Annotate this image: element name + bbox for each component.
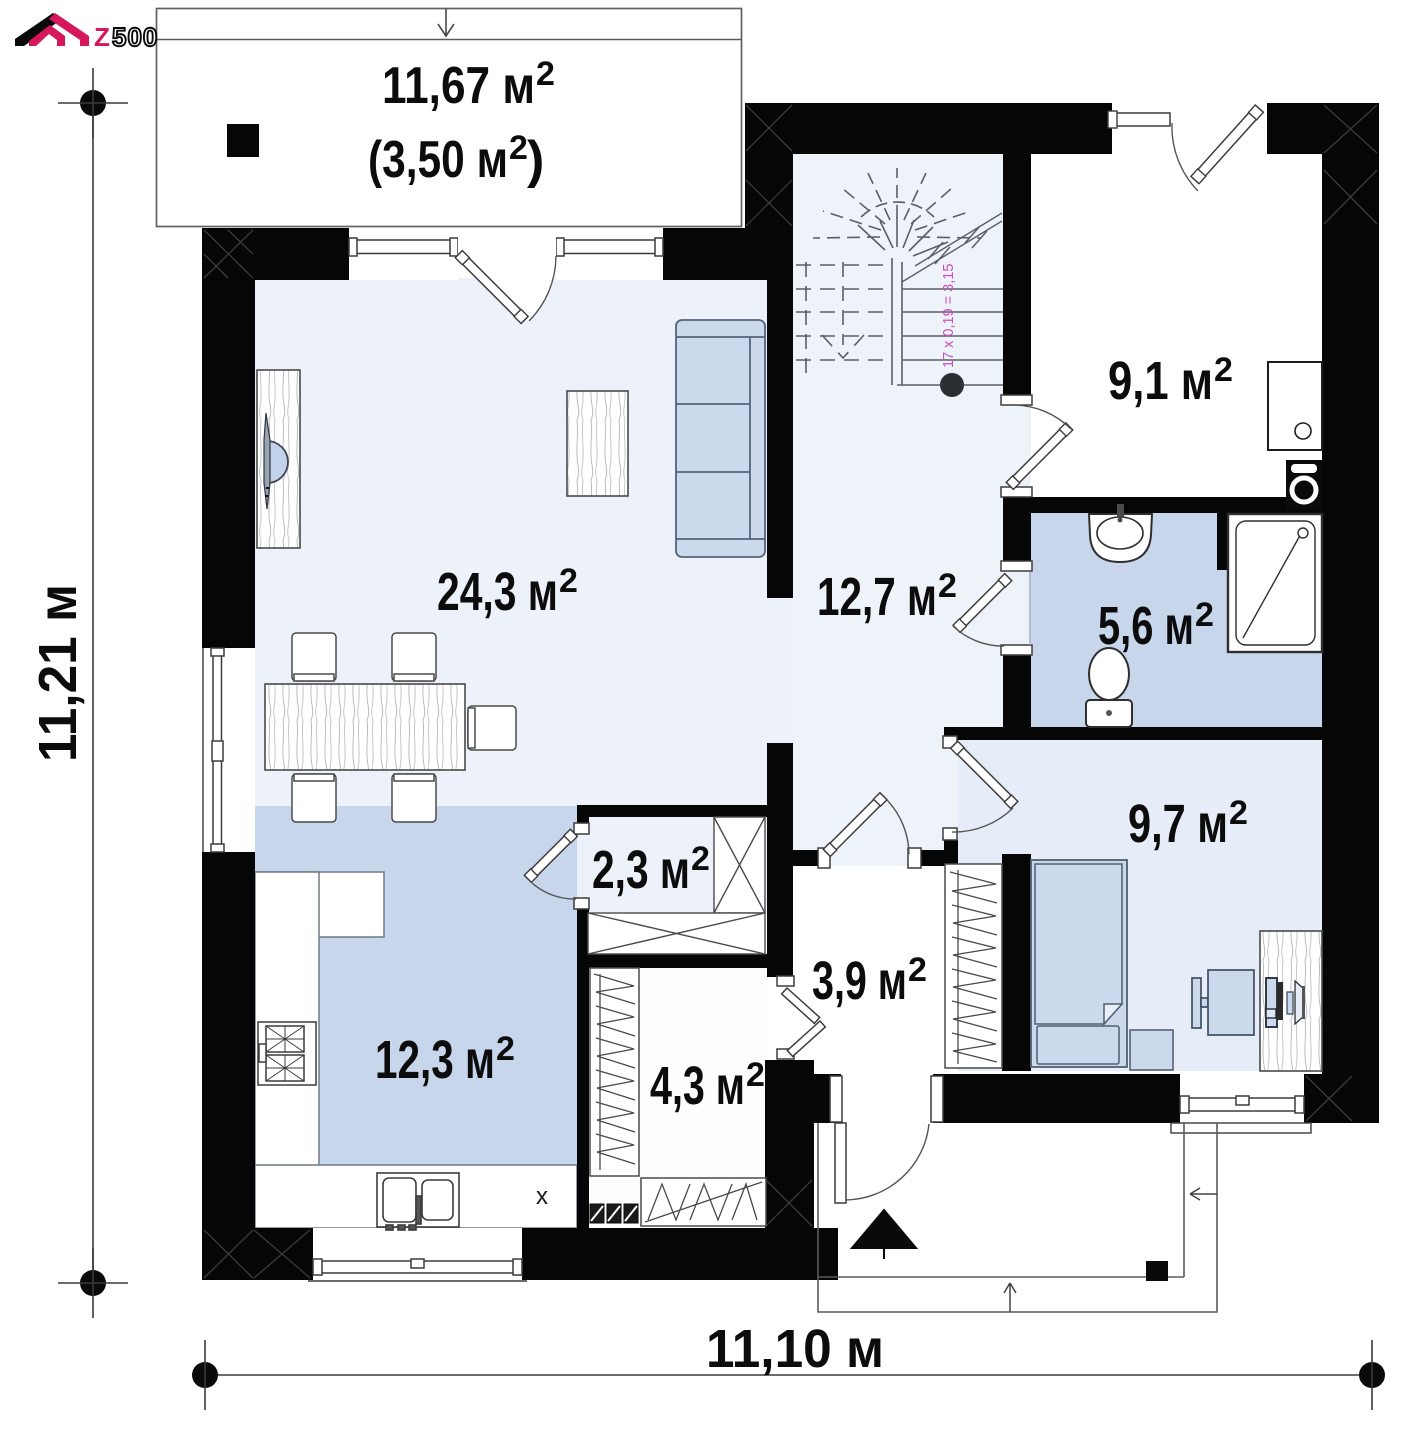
svg-text:12,7 м: 12,7 м (817, 567, 937, 627)
svg-text:(3,50 м: (3,50 м (368, 131, 508, 189)
svg-text:2: 2 (1195, 596, 1214, 634)
svg-text:2: 2 (908, 951, 927, 989)
svg-text:17 x 0,19 = 3,15: 17 x 0,19 = 3,15 (941, 264, 957, 368)
svg-text:2: 2 (1214, 351, 1233, 389)
svg-text:Z: Z (94, 22, 110, 52)
svg-text:2: 2 (938, 567, 957, 605)
svg-text:9,1 м: 9,1 м (1108, 351, 1213, 411)
svg-text:x: x (536, 1183, 548, 1210)
svg-text:24,3 м: 24,3 м (437, 562, 558, 622)
svg-text:2: 2 (691, 840, 710, 878)
svg-text:4,3 м: 4,3 м (650, 1056, 745, 1116)
svg-text:11,10 м: 11,10 м (706, 1319, 884, 1379)
svg-text:2: 2 (1229, 794, 1248, 832)
svg-text:2: 2 (559, 562, 578, 600)
svg-text:2: 2 (536, 55, 555, 93)
svg-text:500: 500 (112, 22, 158, 52)
svg-text:11,67 м: 11,67 м (382, 57, 535, 115)
svg-text:12,3 м: 12,3 м (375, 1030, 495, 1090)
svg-text:9,7 м: 9,7 м (1128, 794, 1228, 854)
svg-text:2: 2 (496, 1030, 515, 1068)
svg-text:2,3 м: 2,3 м (592, 840, 690, 900)
svg-text:2: 2 (509, 129, 528, 167)
svg-text:3,9 м: 3,9 м (812, 951, 907, 1011)
svg-text:): ) (527, 131, 544, 189)
svg-text:5,6 м: 5,6 м (1098, 596, 1194, 656)
svg-text:2: 2 (746, 1056, 765, 1094)
svg-text:11,21 м: 11,21 м (28, 584, 88, 762)
